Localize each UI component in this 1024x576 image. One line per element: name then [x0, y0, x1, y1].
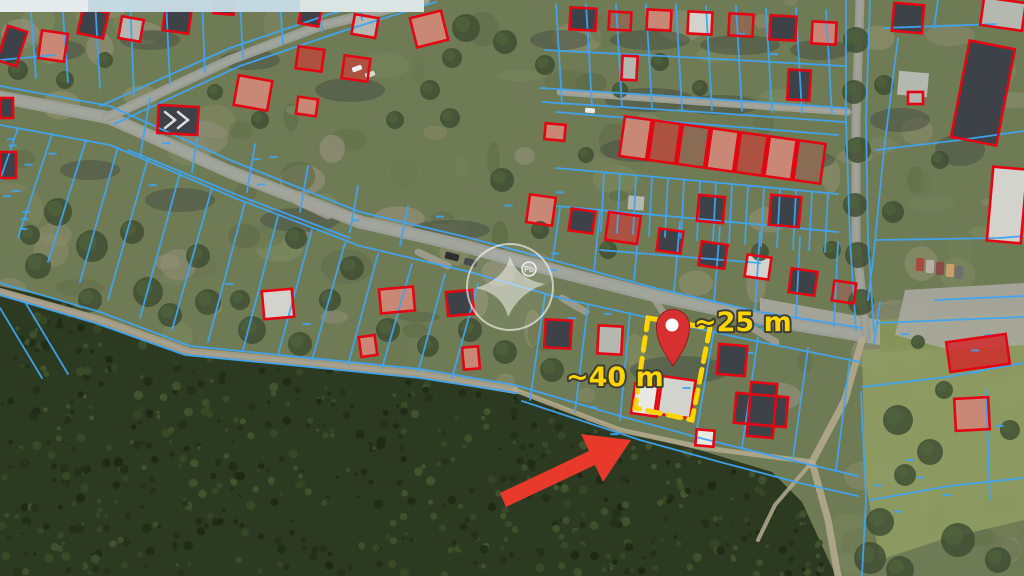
- forest-texture: [197, 446, 201, 450]
- forest-texture: [431, 503, 436, 508]
- forest-texture: [173, 532, 180, 539]
- forest-texture: [134, 453, 143, 462]
- forest-texture: [7, 398, 14, 405]
- forest-texture: [361, 508, 365, 512]
- forest-texture: [196, 369, 200, 373]
- tree-canopy-highlight: [886, 408, 903, 425]
- forest-texture: [552, 525, 560, 533]
- forest-texture: [160, 506, 166, 512]
- forest-texture: [96, 499, 101, 504]
- tree-canopy-highlight: [869, 511, 884, 526]
- forest-texture: [439, 524, 447, 532]
- forest-texture: [92, 566, 99, 573]
- forest-texture: [357, 495, 361, 499]
- building-roof: [379, 287, 415, 314]
- forest-texture: [447, 496, 456, 505]
- tree-canopy-highlight: [846, 30, 860, 44]
- forest-texture: [418, 454, 421, 457]
- tree-canopy-highlight: [876, 77, 887, 88]
- forest-texture: [779, 545, 788, 554]
- forest-texture: [300, 536, 306, 542]
- forest-texture: [376, 561, 382, 567]
- forest-texture: [316, 399, 322, 405]
- forest-texture: [16, 508, 19, 511]
- forest-texture: [86, 352, 93, 359]
- forest-texture: [283, 564, 289, 570]
- forest-texture: [402, 537, 405, 540]
- forest-texture: [674, 535, 677, 538]
- forest-texture: [572, 530, 581, 539]
- forest-texture: [3, 439, 8, 444]
- forest-texture: [328, 480, 335, 487]
- forest-texture: [509, 474, 517, 482]
- tree-canopy-highlight: [287, 229, 299, 241]
- forest-texture: [541, 453, 546, 458]
- forest-texture: [103, 525, 110, 532]
- forest-texture: [451, 457, 456, 462]
- pin-center-dot: [666, 319, 679, 332]
- forest-texture: [404, 532, 408, 536]
- forest-texture: [60, 464, 69, 473]
- forest-texture: [570, 551, 579, 560]
- forest-texture: [609, 518, 618, 527]
- forest-texture: [414, 467, 423, 476]
- forest-texture: [224, 453, 230, 459]
- forest-texture: [485, 565, 494, 574]
- forest-texture: [102, 376, 106, 380]
- forest-texture: [437, 462, 442, 467]
- forest-texture: [160, 394, 168, 402]
- building-roof: [544, 319, 571, 348]
- forest-texture: [232, 503, 236, 507]
- satellite-map: Pb ~25 m ~40 m: [0, 0, 1024, 576]
- forest-texture: [8, 567, 12, 571]
- forest-texture: [124, 354, 127, 357]
- forest-texture: [331, 402, 336, 407]
- tree-canopy-highlight: [912, 336, 920, 344]
- forest-texture: [561, 541, 568, 548]
- forest-texture: [156, 410, 160, 414]
- forest-texture: [102, 459, 111, 468]
- map-viewport: Pb ~25 m ~40 m: [0, 0, 1024, 576]
- forest-texture: [103, 554, 107, 558]
- forest-texture: [630, 568, 634, 572]
- forest-texture: [619, 553, 626, 560]
- forest-texture: [257, 469, 261, 473]
- forest-texture: [104, 568, 110, 574]
- forest-texture: [47, 440, 52, 445]
- ground-patch: [412, 54, 424, 84]
- forest-texture: [47, 451, 55, 459]
- forest-texture: [536, 543, 543, 550]
- forest-texture: [124, 388, 128, 392]
- forest-texture: [43, 407, 48, 412]
- forest-texture: [393, 423, 399, 429]
- forest-texture: [112, 569, 115, 572]
- forest-texture: [81, 522, 85, 526]
- ground-patch: [229, 121, 253, 140]
- car: [936, 262, 945, 275]
- forest-texture: [113, 481, 120, 488]
- forest-texture: [280, 492, 283, 495]
- forest-texture: [510, 407, 518, 415]
- forest-texture: [35, 348, 40, 353]
- forest-texture: [23, 523, 28, 528]
- forest-texture: [731, 522, 734, 525]
- forest-texture: [270, 430, 278, 438]
- building-roof: [597, 325, 622, 354]
- forest-texture: [799, 522, 803, 526]
- forest-texture: [414, 544, 421, 551]
- forest-texture: [733, 545, 738, 550]
- forest-texture: [279, 456, 285, 462]
- forest-texture: [45, 463, 49, 467]
- forest-texture: [374, 500, 383, 509]
- forest-texture: [172, 382, 181, 391]
- forest-texture: [212, 488, 219, 495]
- forest-texture: [405, 379, 411, 385]
- forest-texture: [425, 394, 433, 402]
- forest-texture: [327, 392, 331, 396]
- forest-texture: [238, 425, 244, 431]
- forest-texture: [197, 527, 205, 535]
- forest-texture: [89, 415, 94, 420]
- tree-canopy-highlight: [388, 113, 398, 123]
- forest-texture: [189, 479, 198, 488]
- forest-texture: [651, 539, 655, 543]
- forest-texture: [613, 484, 622, 493]
- forest-texture: [176, 563, 179, 566]
- forest-texture: [731, 469, 737, 475]
- forest-texture: [109, 540, 116, 547]
- forest-texture: [330, 433, 335, 438]
- forest-texture: [24, 552, 28, 556]
- forest-texture: [70, 400, 74, 404]
- forest-texture: [69, 331, 73, 335]
- forest-texture: [91, 554, 100, 563]
- forest-texture: [443, 514, 452, 523]
- forest-texture: [269, 382, 278, 391]
- forest-texture: [121, 561, 128, 568]
- forest-texture: [65, 342, 74, 351]
- forest-texture: [464, 566, 470, 572]
- forest-texture: [95, 512, 100, 517]
- tree-canopy-highlight: [495, 342, 508, 355]
- tree-canopy-highlight: [290, 334, 303, 347]
- forest-texture: [178, 420, 187, 429]
- forest-texture: [228, 462, 237, 471]
- forest-texture: [241, 528, 249, 536]
- forest-texture: [38, 528, 44, 534]
- forest-texture: [56, 322, 63, 329]
- forest-texture: [56, 435, 62, 441]
- forest-texture: [339, 389, 345, 395]
- forest-texture: [709, 567, 713, 571]
- forest-texture: [228, 401, 232, 405]
- forest-texture: [258, 463, 264, 469]
- forest-texture: [399, 445, 405, 451]
- forest-texture: [626, 479, 630, 483]
- forest-texture: [240, 523, 245, 528]
- forest-texture: [105, 356, 113, 364]
- forest-texture: [324, 505, 331, 512]
- forest-texture: [172, 357, 181, 366]
- forest-texture: [448, 547, 454, 553]
- forest-texture: [643, 538, 652, 547]
- forest-texture: [579, 541, 582, 544]
- tree-canopy-highlight: [378, 320, 391, 333]
- forest-texture: [57, 426, 61, 430]
- forest-texture: [716, 546, 725, 555]
- forest-texture: [505, 520, 512, 527]
- forest-texture: [803, 522, 807, 526]
- forest-texture: [675, 463, 681, 469]
- forest-texture: [747, 532, 751, 536]
- ground-patch: [868, 137, 897, 154]
- forest-texture: [400, 513, 408, 521]
- watermark-badge-label: Pb: [524, 265, 534, 274]
- tree-canopy-highlight: [884, 203, 896, 215]
- shadow: [870, 108, 930, 132]
- forest-texture: [606, 491, 611, 496]
- forest-texture: [140, 505, 144, 509]
- forest-texture: [703, 479, 708, 484]
- forest-texture: [321, 500, 327, 506]
- forest-texture: [83, 366, 92, 375]
- forest-texture: [66, 404, 71, 409]
- building-roof: [687, 11, 712, 34]
- forest-texture: [192, 534, 197, 539]
- forest-texture: [259, 401, 264, 406]
- forest-texture: [410, 522, 417, 529]
- forest-texture: [69, 538, 74, 543]
- tree-canopy-highlight: [896, 466, 908, 478]
- forest-texture: [295, 482, 302, 489]
- forest-texture: [125, 504, 132, 511]
- tree-canopy-highlight: [444, 50, 455, 61]
- tree-canopy-highlight: [857, 545, 875, 563]
- ground-patch: [917, 172, 931, 198]
- forest-texture: [14, 533, 23, 542]
- forest-texture: [1, 474, 7, 480]
- ground-patch: [423, 126, 447, 140]
- forest-texture: [462, 444, 467, 449]
- forest-texture: [513, 396, 517, 400]
- forest-texture: [262, 439, 266, 443]
- tree-canopy-highlight: [342, 258, 355, 271]
- forest-texture: [612, 559, 618, 565]
- forest-texture: [298, 474, 303, 479]
- forest-texture: [631, 453, 637, 459]
- forest-texture: [253, 412, 259, 418]
- forest-texture: [145, 410, 153, 418]
- forest-texture: [168, 427, 175, 434]
- forest-texture: [775, 522, 780, 527]
- forest-texture: [401, 490, 408, 497]
- forest-texture: [146, 547, 155, 556]
- forest-texture: [142, 465, 147, 470]
- tree-canopy-highlight: [492, 170, 505, 183]
- forest-texture: [530, 467, 536, 473]
- tree-canopy-highlight: [80, 290, 93, 303]
- forest-texture: [577, 472, 582, 477]
- forest-texture: [555, 423, 563, 431]
- forest-texture: [23, 461, 27, 465]
- forest-texture: [114, 457, 123, 466]
- forest-texture: [98, 381, 103, 386]
- forest-texture: [347, 565, 353, 571]
- forest-texture: [59, 483, 66, 490]
- forest-texture: [631, 446, 635, 450]
- forest-texture: [548, 533, 555, 540]
- forest-texture: [76, 348, 82, 354]
- forest-texture: [754, 486, 762, 494]
- forest-texture: [8, 467, 14, 473]
- forest-texture: [666, 480, 670, 484]
- forest-texture: [488, 503, 496, 511]
- forest-texture: [358, 542, 365, 549]
- forest-texture: [473, 560, 478, 565]
- forest-texture: [438, 428, 441, 431]
- forest-texture: [377, 436, 386, 445]
- forest-texture: [144, 563, 148, 567]
- forest-texture: [324, 387, 327, 390]
- forest-texture: [192, 369, 196, 373]
- forest-texture: [267, 468, 270, 471]
- forest-texture: [105, 514, 109, 518]
- forest-texture: [500, 556, 507, 563]
- forest-texture: [13, 567, 22, 576]
- forest-texture: [289, 449, 298, 458]
- tree-canopy-highlight: [537, 57, 548, 68]
- forest-texture: [651, 464, 657, 470]
- forest-texture: [224, 428, 228, 432]
- forest-texture: [197, 564, 202, 569]
- forest-texture: [80, 465, 87, 472]
- forest-texture: [187, 386, 196, 395]
- forest-texture: [336, 475, 339, 478]
- forest-texture: [652, 565, 658, 571]
- forest-texture: [716, 523, 720, 527]
- ground-patch: [514, 147, 535, 165]
- forest-texture: [51, 543, 59, 551]
- forest-texture: [329, 428, 334, 433]
- forest-texture: [452, 540, 457, 545]
- forest-texture: [642, 556, 645, 559]
- forest-texture: [666, 498, 672, 504]
- forest-texture: [144, 377, 153, 386]
- ground-patch: [907, 195, 956, 212]
- ground-patch: [390, 159, 419, 188]
- forest-texture: [458, 389, 466, 397]
- forest-texture: [537, 548, 545, 556]
- forest-texture: [39, 316, 48, 325]
- forest-texture: [44, 371, 49, 376]
- forest-texture: [542, 441, 549, 448]
- forest-texture: [711, 491, 718, 498]
- forest-texture: [264, 421, 271, 428]
- forest-texture: [665, 460, 670, 465]
- forest-texture: [385, 534, 391, 540]
- forest-texture: [311, 546, 318, 553]
- shadow: [530, 30, 590, 50]
- forest-texture: [388, 560, 396, 568]
- forest-texture: [4, 513, 9, 518]
- forest-texture: [563, 517, 570, 524]
- forest-texture: [45, 554, 54, 563]
- forest-texture: [328, 552, 333, 557]
- forest-texture: [124, 371, 129, 376]
- forest-texture: [6, 523, 12, 529]
- forest-texture: [401, 456, 407, 462]
- forest-texture: [744, 517, 750, 523]
- forest-texture: [305, 488, 312, 495]
- forest-texture: [215, 428, 220, 433]
- building-roof: [627, 195, 644, 210]
- forest-texture: [676, 559, 682, 565]
- forest-texture: [430, 513, 437, 520]
- forest-texture: [289, 530, 295, 536]
- forest-texture: [519, 444, 526, 451]
- forest-texture: [247, 432, 254, 439]
- forest-texture: [174, 548, 177, 551]
- tree-canopy-highlight: [198, 292, 212, 306]
- forest-texture: [266, 511, 274, 519]
- forest-texture: [730, 497, 733, 500]
- forest-texture: [815, 553, 820, 558]
- forest-texture: [758, 476, 767, 485]
- tree-canopy-highlight: [845, 195, 858, 208]
- watermark: Pb: [467, 244, 553, 330]
- building-roof: [769, 15, 796, 40]
- forest-texture: [503, 537, 508, 542]
- forest-texture: [96, 527, 102, 533]
- forest-texture: [601, 567, 605, 571]
- forest-texture: [295, 387, 301, 393]
- forest-texture: [458, 504, 463, 509]
- forest-texture: [64, 337, 69, 342]
- forest-texture: [521, 464, 527, 470]
- forest-texture: [290, 519, 294, 523]
- tree-canopy-highlight: [232, 292, 243, 303]
- forest-texture: [65, 567, 71, 573]
- forest-texture: [80, 564, 84, 568]
- forest-texture: [2, 552, 11, 561]
- forest-texture: [277, 561, 283, 567]
- forest-texture: [320, 545, 327, 552]
- forest-texture: [409, 538, 414, 543]
- forest-texture: [502, 506, 509, 513]
- forest-texture: [725, 542, 729, 546]
- forest-texture: [484, 445, 490, 451]
- forest-texture: [500, 513, 506, 519]
- forest-texture: [620, 476, 626, 482]
- forest-texture: [114, 499, 118, 503]
- forest-texture: [139, 421, 142, 424]
- forest-texture: [126, 404, 133, 411]
- forest-texture: [22, 386, 28, 392]
- forest-texture: [401, 428, 407, 434]
- car: [916, 258, 925, 271]
- forest-texture: [664, 515, 669, 520]
- forest-texture: [32, 441, 41, 450]
- forest-texture: [230, 479, 237, 486]
- forest-texture: [601, 508, 609, 516]
- tree-canopy-highlight: [944, 526, 963, 545]
- tree-canopy-highlight: [99, 54, 108, 63]
- forest-texture: [277, 368, 280, 371]
- forest-texture: [515, 400, 520, 405]
